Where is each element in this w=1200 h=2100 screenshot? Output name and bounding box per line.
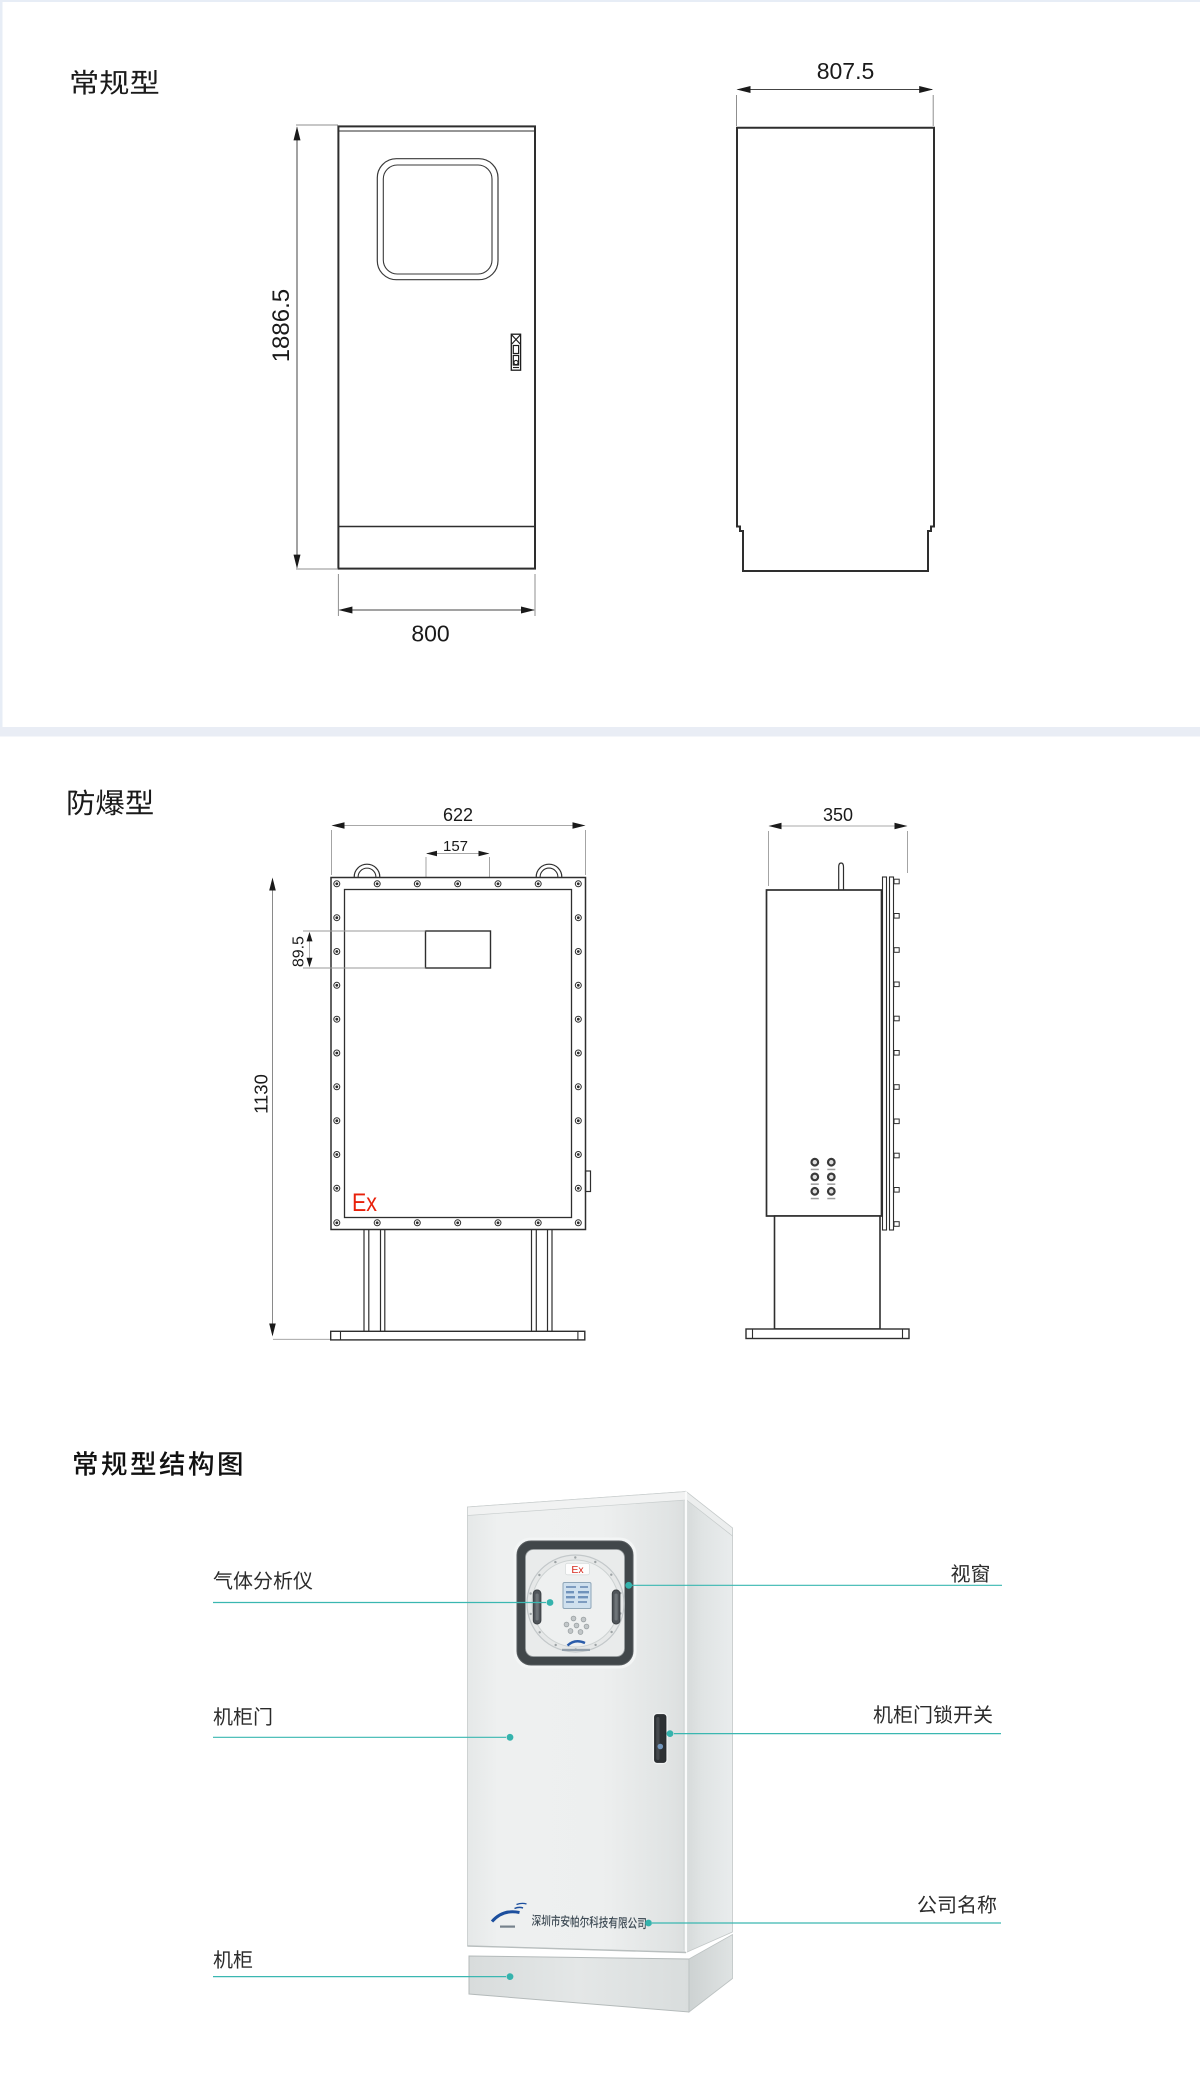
svg-text:1130: 1130 — [250, 1074, 271, 1114]
svg-text:Ex: Ex — [352, 1189, 377, 1217]
svg-text:350: 350 — [823, 805, 853, 825]
svg-text:157: 157 — [443, 838, 468, 855]
svg-text:Ex: Ex — [571, 1564, 584, 1576]
svg-text:89.5: 89.5 — [290, 936, 307, 967]
svg-text:800: 800 — [411, 621, 449, 647]
svg-text:622: 622 — [443, 805, 473, 825]
svg-text:1886.5: 1886.5 — [268, 289, 295, 362]
svg-text:807.5: 807.5 — [817, 58, 875, 84]
